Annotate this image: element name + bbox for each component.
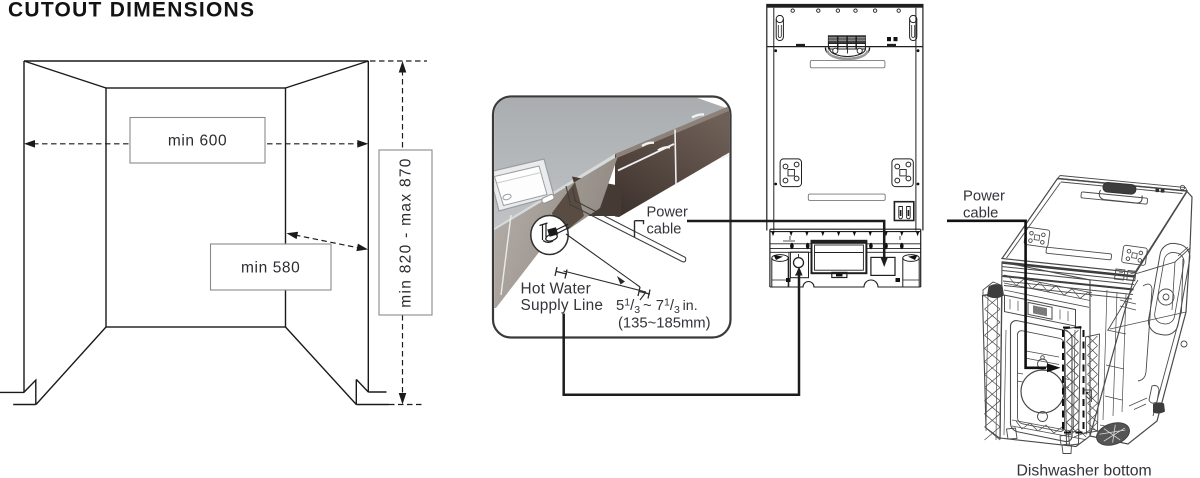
- svg-text:cable: cable: [647, 222, 682, 238]
- svg-text:CUTOUT DIMENSIONS: CUTOUT DIMENSIONS: [8, 0, 255, 22]
- svg-text:(135~185mm): (135~185mm): [618, 316, 711, 332]
- svg-text:Power: Power: [963, 189, 1005, 205]
- svg-text:cable: cable: [963, 206, 998, 222]
- svg-text:min 820 - max 870: min 820 - max 870: [398, 157, 415, 307]
- svg-text:Hot Water: Hot Water: [521, 281, 592, 298]
- svg-text:Dishwasher bottom: Dishwasher bottom: [1017, 463, 1152, 478]
- svg-text:min 600: min 600: [168, 133, 227, 150]
- svg-text:min 580: min 580: [241, 260, 300, 277]
- svg-text:Power: Power: [647, 205, 689, 221]
- svg-text:Supply Line: Supply Line: [521, 297, 604, 314]
